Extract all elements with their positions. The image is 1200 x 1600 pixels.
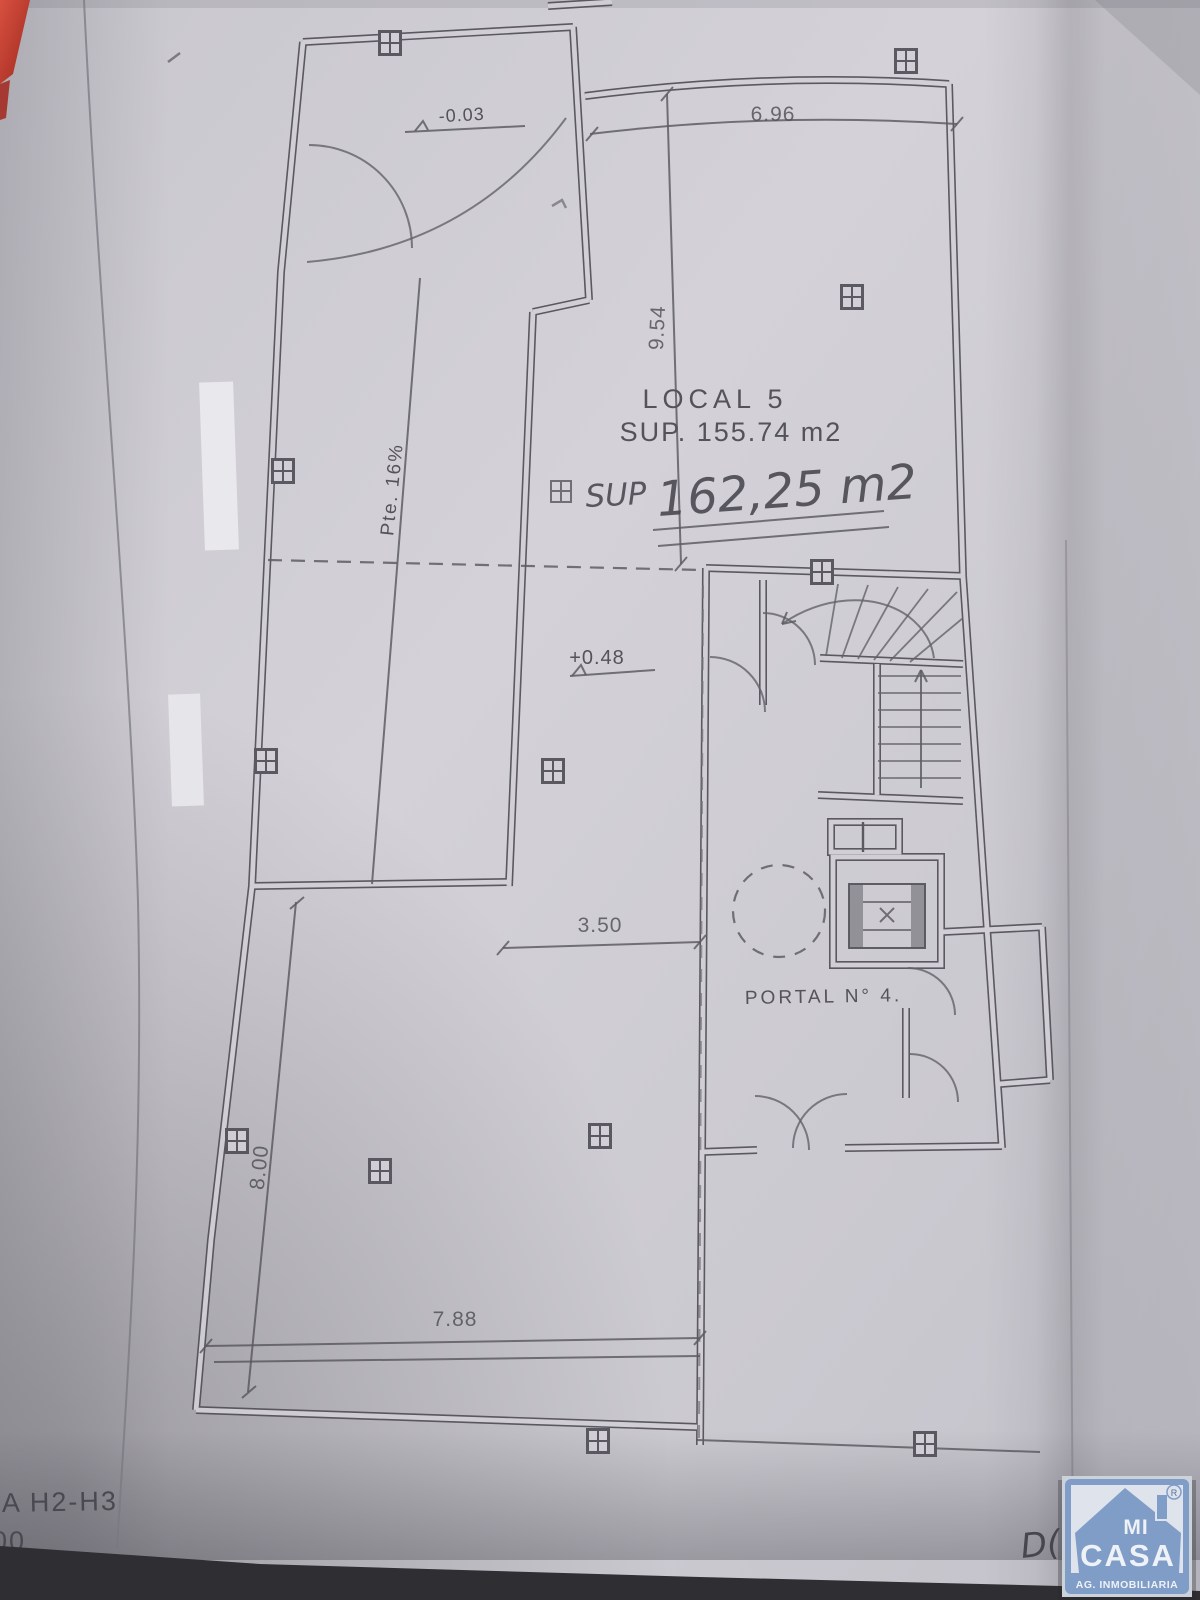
dim-local-depth: 9.54	[645, 305, 670, 351]
level-main-label: +0.48	[569, 647, 625, 669]
sheet-reference: A H2-H3	[2, 1486, 119, 1518]
floorplan-canvas: LOCAL 5 SUP. 155.74 m2 6.96 3.50 7.88 9.…	[0, 0, 1200, 1600]
paper-background	[0, 0, 1200, 1600]
room-title: LOCAL 5	[642, 384, 787, 414]
level-upper-label: -0.03	[438, 104, 485, 126]
tape-strip	[199, 381, 239, 550]
paper-crease-band	[1035, 0, 1105, 1600]
portal-label: PORTAL N° 4.	[745, 985, 903, 1009]
dim-left-depth: 8.00	[246, 1144, 274, 1191]
micasa-logo: R MI CASA AG. INMOBILIARIA	[1058, 1476, 1196, 1600]
chimney-icon	[1156, 1494, 1168, 1520]
stray-handwriting: D(	[1019, 1523, 1064, 1567]
dim-top-width: 6.96	[751, 103, 796, 126]
logo-subtitle: AG. INMOBILIARIA	[1076, 1579, 1179, 1591]
floorplan-photo: LOCAL 5 SUP. 155.74 m2 6.96 3.50 7.88 9.…	[0, 0, 1200, 1600]
handwritten-prefix: SUP	[585, 476, 648, 515]
registered-mark: R	[1171, 1488, 1178, 1498]
dim-opening-width: 3.50	[578, 914, 623, 937]
logo-bottom-word: CASA	[1080, 1538, 1176, 1573]
logo-top-word: MI	[1123, 1516, 1148, 1539]
tape-strip	[168, 693, 204, 806]
dim-bottom-width: 7.88	[433, 1308, 478, 1331]
room-area: SUP. 155.74 m2	[620, 417, 843, 447]
